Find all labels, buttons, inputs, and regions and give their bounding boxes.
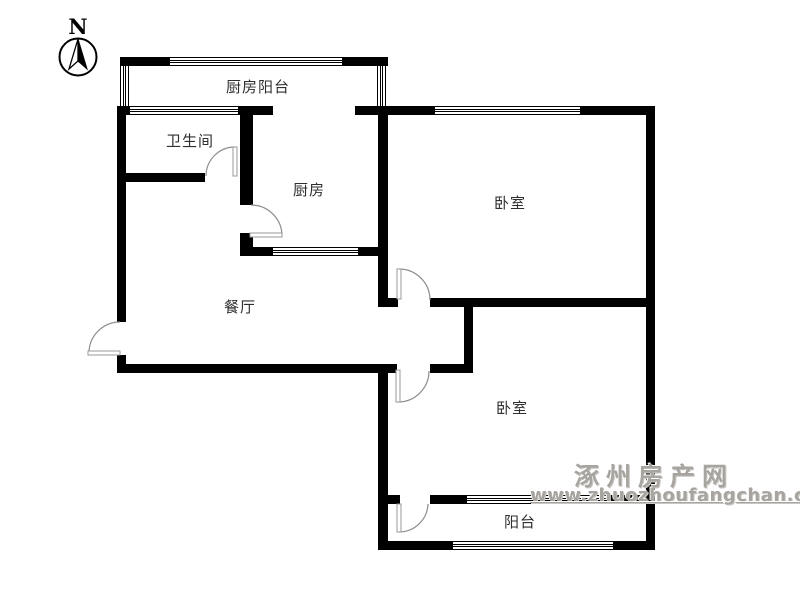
bedroom-south-door bbox=[396, 370, 429, 402]
kitchen-door bbox=[250, 205, 282, 237]
bedroom-north-door bbox=[397, 269, 430, 300]
balcony-door bbox=[397, 504, 428, 532]
room-label-dining: 餐厅 bbox=[224, 296, 256, 317]
room-label-bedroom-north: 卧室 bbox=[494, 192, 526, 213]
watermark-site-url: www.zhuozhoufangchan.com bbox=[530, 485, 800, 506]
room-label-balcony: 阳台 bbox=[504, 511, 536, 532]
doors-layer bbox=[0, 0, 800, 600]
entry-door bbox=[88, 322, 120, 355]
room-label-kitchen-balcony: 厨房阳台 bbox=[226, 76, 290, 97]
room-label-bedroom-south: 卧室 bbox=[496, 397, 528, 418]
floor-plan: N bbox=[0, 0, 800, 600]
bathroom-door bbox=[206, 147, 237, 176]
room-label-kitchen: 厨房 bbox=[293, 179, 325, 200]
room-label-bathroom: 卫生间 bbox=[166, 130, 214, 151]
